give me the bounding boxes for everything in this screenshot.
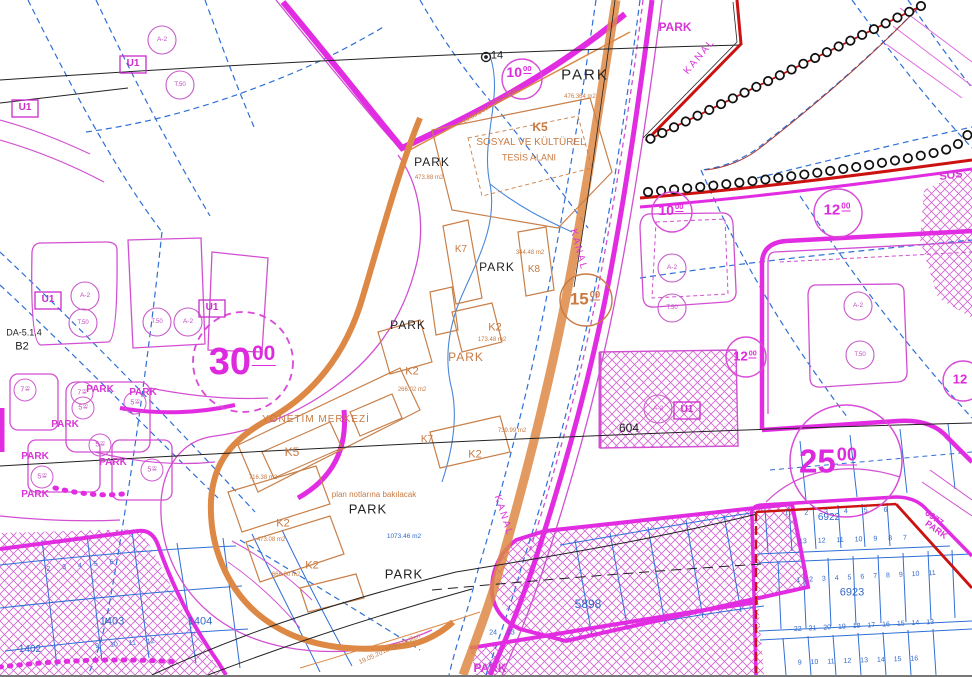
- zoning-map-canvas[interactable]: PARKPARKPARKPARKPARKPARK14604DA-5.1.4B2P…: [0, 0, 972, 677]
- road-width-circles: [12, 26, 972, 517]
- circle-chain-lines: [648, 6, 971, 192]
- map-linework: [0, 0, 972, 675]
